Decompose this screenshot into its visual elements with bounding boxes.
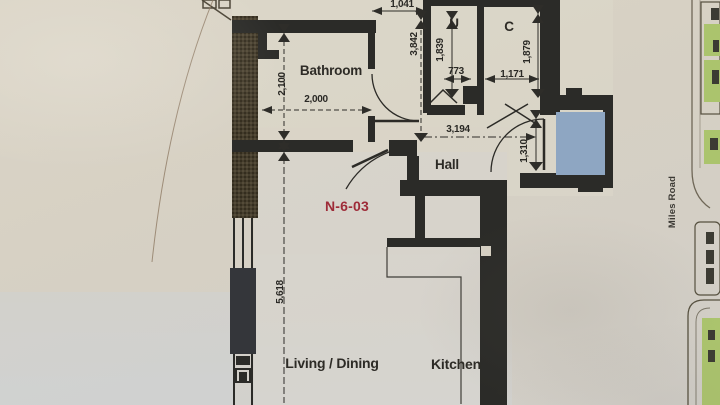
- site-plan-strip: [688, 0, 720, 405]
- floorplan-linework: [0, 0, 720, 405]
- shaft-blue-box: [556, 112, 605, 175]
- floorplan-photo: Bathroom U C Hall Living / Dining Kitche…: [0, 0, 720, 405]
- annotation-curve: [152, 0, 213, 262]
